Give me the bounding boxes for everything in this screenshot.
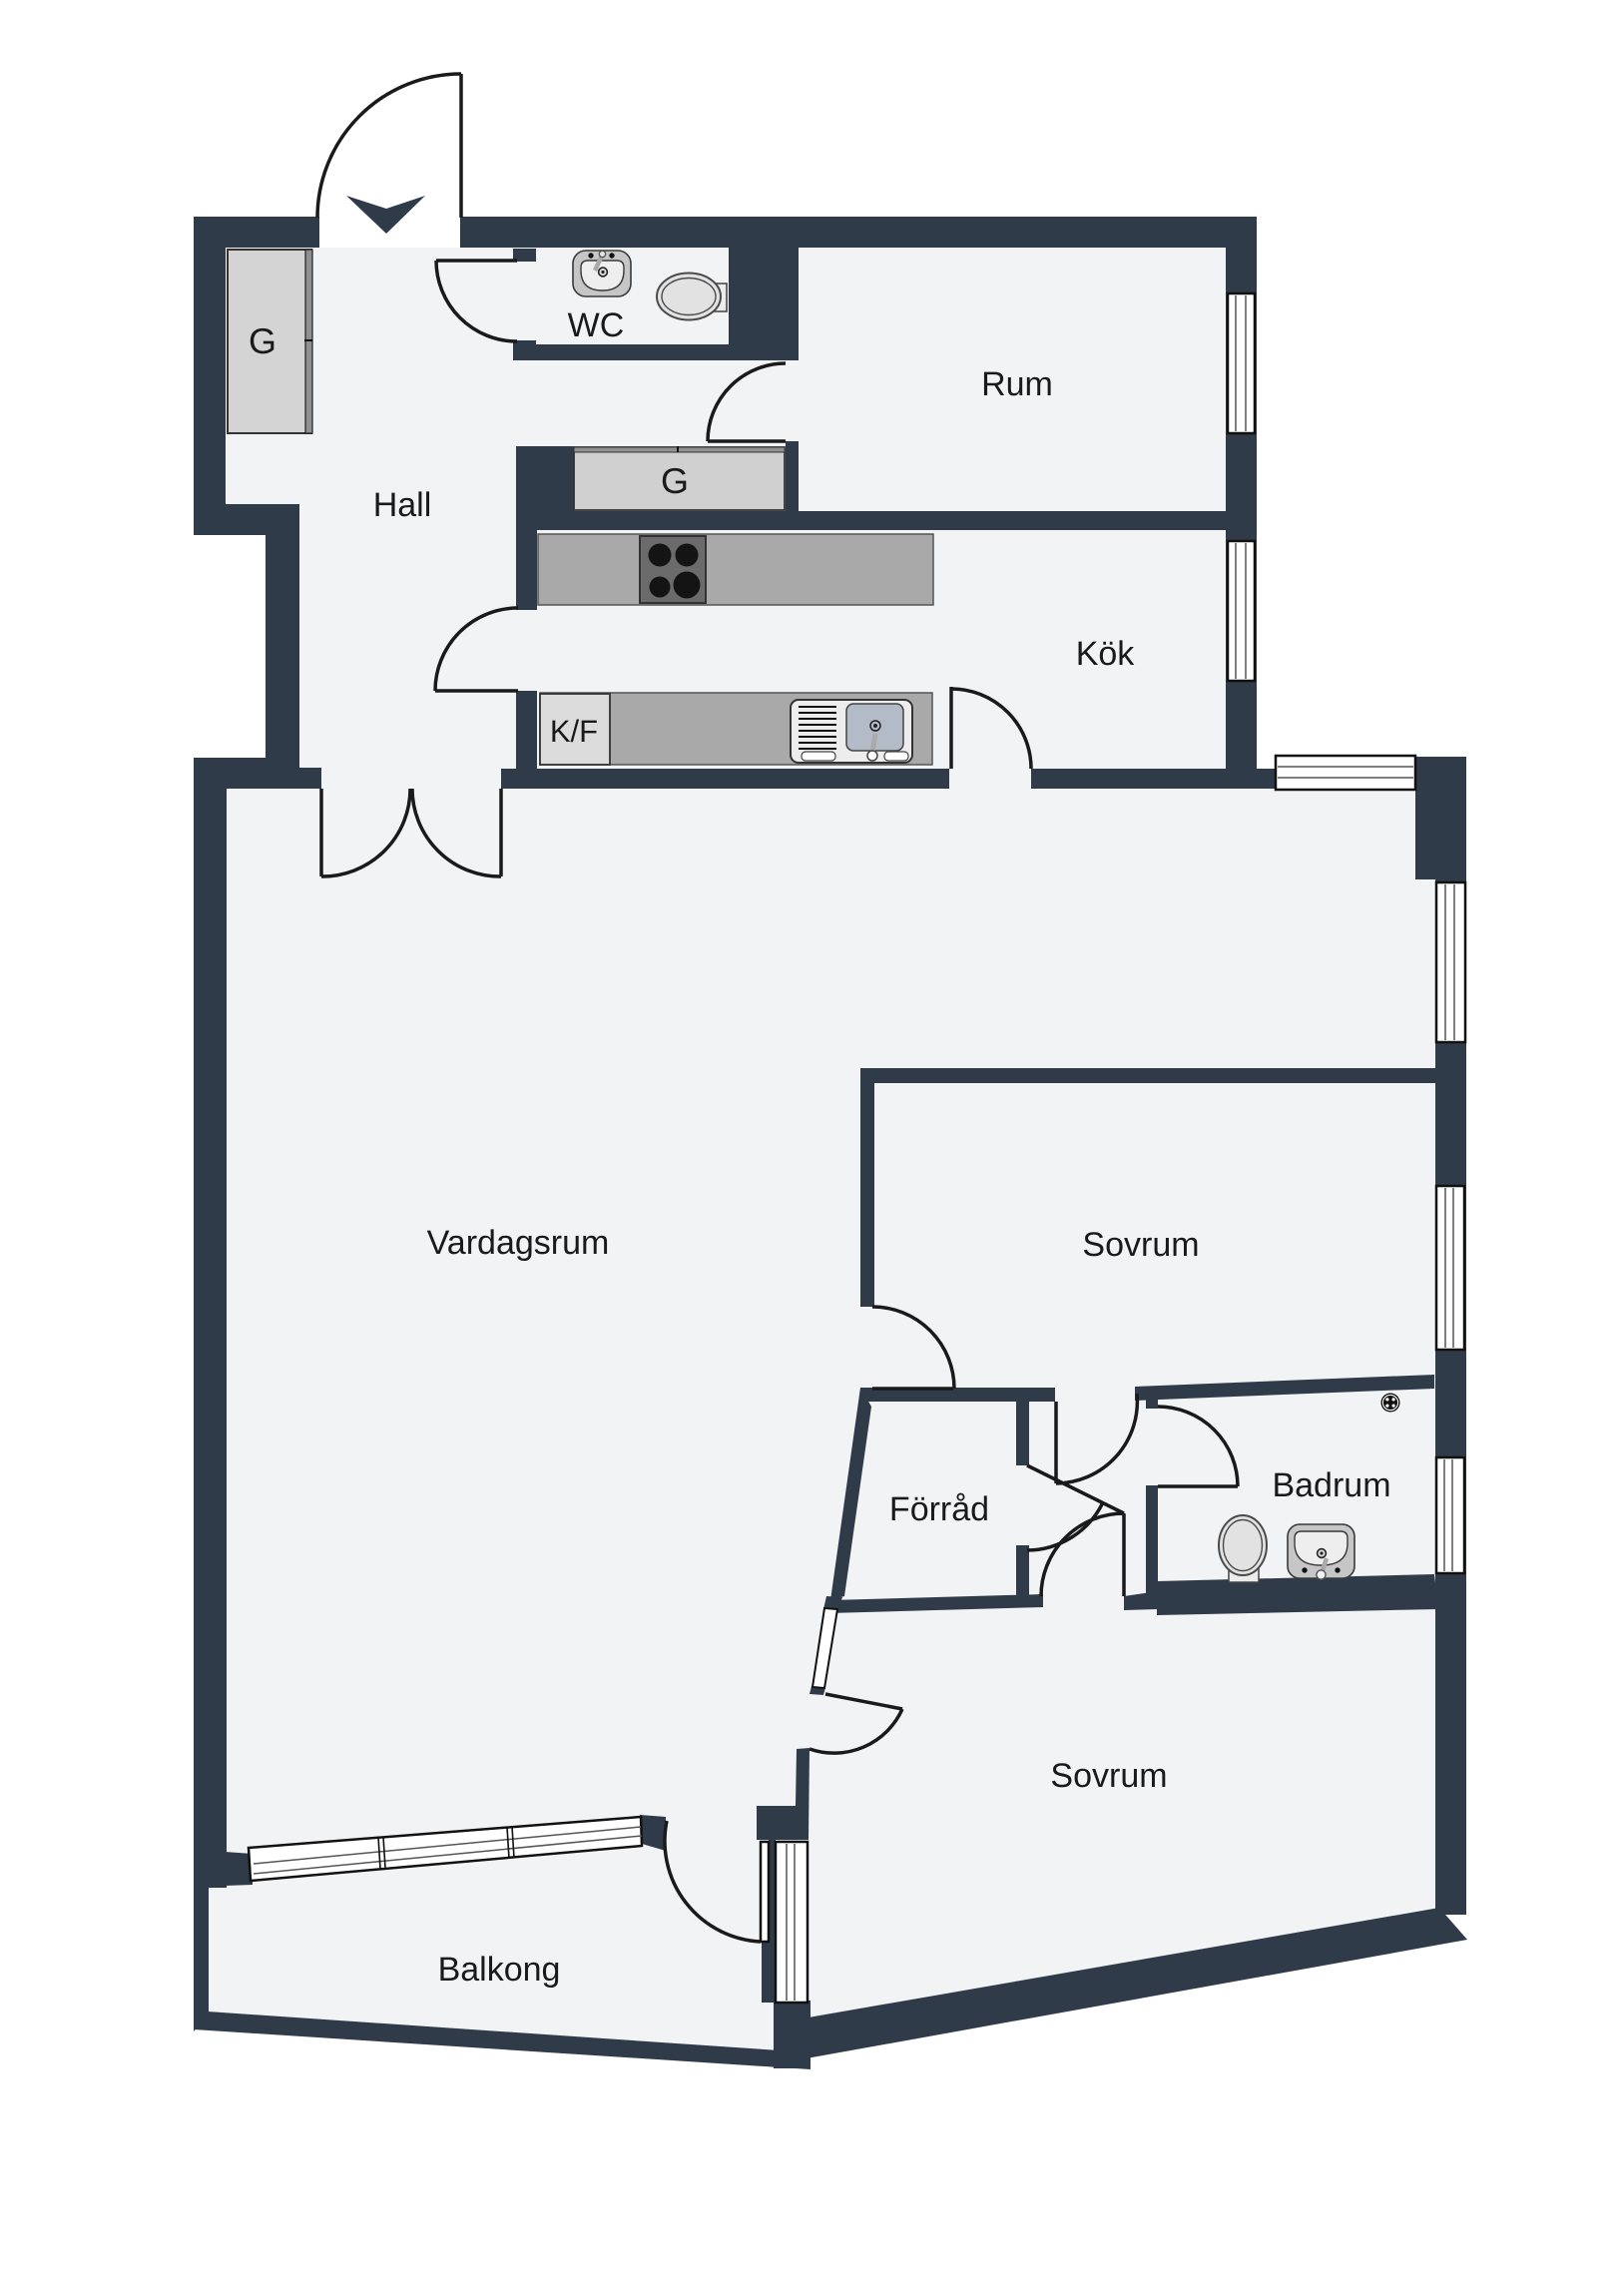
svg-text:Kök: Kök [1076, 635, 1136, 673]
svg-text:Balkong: Balkong [438, 1951, 561, 1989]
svg-text:Sovrum: Sovrum [1050, 1757, 1167, 1795]
svg-text:Rum: Rum [981, 365, 1053, 403]
svg-text:Sovrum: Sovrum [1082, 1226, 1199, 1264]
svg-text:WC: WC [568, 306, 625, 344]
svg-text:G: G [661, 460, 689, 501]
svg-text:K/F: K/F [550, 714, 598, 749]
svg-text:Hall: Hall [373, 486, 432, 524]
svg-text:Vardagsrum: Vardagsrum [427, 1224, 610, 1262]
svg-text:Badrum: Badrum [1272, 1466, 1390, 1504]
svg-text:Förråd: Förråd [889, 1490, 989, 1528]
svg-text:G: G [249, 320, 276, 361]
